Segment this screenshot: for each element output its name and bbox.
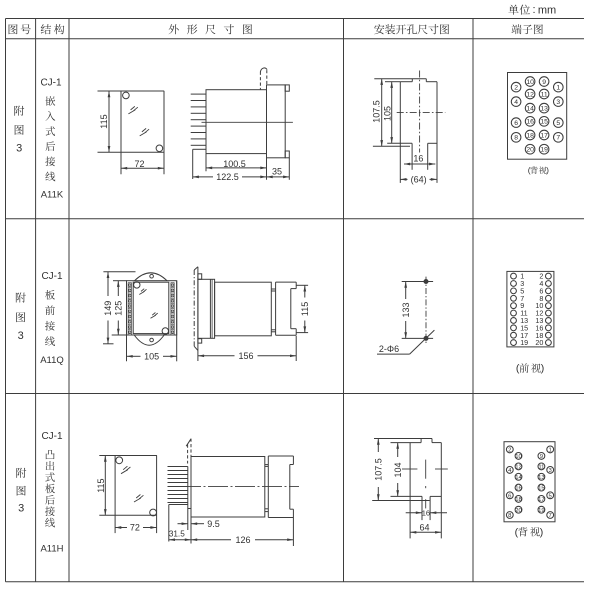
svg-text:115: 115: [300, 302, 310, 316]
svg-text:107.5: 107.5: [373, 458, 383, 481]
svg-text:3: 3: [556, 99, 560, 106]
svg-text:2-Φ6: 2-Φ6: [379, 344, 399, 354]
svg-text:13: 13: [538, 475, 545, 481]
svg-text:105: 105: [382, 106, 392, 121]
svg-text:9.5: 9.5: [207, 519, 220, 529]
svg-text:100.5: 100.5: [223, 159, 246, 169]
svg-text:20: 20: [515, 508, 522, 514]
svg-text:1: 1: [556, 85, 560, 92]
svg-text:115: 115: [96, 478, 106, 492]
svg-text:1: 1: [549, 447, 552, 453]
svg-text:14: 14: [515, 475, 522, 481]
svg-text:3: 3: [18, 330, 24, 342]
svg-text:122.5: 122.5: [216, 172, 239, 182]
svg-text:19: 19: [520, 338, 528, 347]
svg-text:8: 8: [514, 135, 518, 142]
svg-text:mm: mm: [538, 5, 556, 17]
svg-text:(: (: [516, 363, 520, 375]
svg-text:17: 17: [540, 132, 548, 139]
svg-text:35: 35: [272, 167, 282, 177]
svg-text:14: 14: [526, 106, 534, 113]
svg-text:20: 20: [535, 338, 543, 347]
svg-text:A11H: A11H: [40, 543, 63, 554]
svg-text:18: 18: [526, 132, 534, 139]
svg-text:CJ-1: CJ-1: [40, 77, 62, 88]
svg-text:CJ-1: CJ-1: [41, 271, 63, 282]
svg-text:(: (: [528, 165, 531, 175]
svg-text:107.5: 107.5: [372, 100, 382, 123]
svg-text:17: 17: [538, 497, 545, 503]
svg-text:72: 72: [134, 159, 144, 169]
svg-text:11: 11: [538, 464, 544, 470]
svg-text:A11K: A11K: [41, 189, 64, 200]
svg-text:A11Q: A11Q: [40, 355, 64, 366]
svg-text:12: 12: [526, 91, 534, 98]
svg-text::: :: [532, 4, 535, 16]
svg-text:115: 115: [99, 114, 109, 128]
svg-text:): ): [541, 363, 545, 375]
svg-text:15: 15: [540, 119, 548, 126]
svg-text:13: 13: [540, 106, 548, 113]
svg-text:3: 3: [16, 143, 22, 155]
svg-text:): ): [540, 526, 544, 538]
svg-text:2: 2: [514, 85, 518, 92]
svg-text:(: (: [515, 526, 519, 538]
svg-text:16: 16: [413, 154, 423, 164]
svg-text:5: 5: [556, 120, 560, 127]
svg-text:9: 9: [540, 454, 543, 460]
svg-text:72: 72: [130, 523, 140, 533]
svg-text:11: 11: [541, 91, 548, 98]
svg-text:9: 9: [542, 79, 546, 86]
svg-text:19: 19: [538, 508, 545, 514]
svg-text:10: 10: [526, 79, 534, 86]
svg-text:15: 15: [538, 486, 545, 492]
svg-text:7: 7: [556, 135, 560, 142]
svg-text:64: 64: [419, 522, 429, 532]
svg-text:105: 105: [144, 352, 159, 362]
svg-text:156: 156: [238, 351, 253, 361]
svg-text:2: 2: [508, 447, 511, 453]
svg-text:16: 16: [526, 119, 534, 126]
svg-text:CJ-1: CJ-1: [41, 431, 63, 442]
svg-text:125: 125: [113, 301, 123, 316]
svg-text:31.5: 31.5: [169, 529, 185, 538]
svg-text:10: 10: [515, 454, 522, 460]
svg-text:12: 12: [515, 464, 522, 470]
svg-text:20: 20: [526, 147, 534, 154]
svg-text:18: 18: [515, 497, 522, 503]
svg-text:16: 16: [422, 508, 430, 517]
svg-text:(64): (64): [411, 175, 427, 185]
svg-text:4: 4: [514, 99, 518, 106]
svg-text:149: 149: [103, 301, 113, 316]
svg-text:): ): [546, 165, 549, 175]
svg-text:126: 126: [235, 535, 250, 545]
svg-text:7: 7: [549, 513, 552, 519]
svg-text:133: 133: [401, 302, 411, 317]
svg-text:16: 16: [515, 486, 522, 492]
svg-text:3: 3: [18, 503, 24, 515]
svg-text:6: 6: [514, 120, 518, 127]
svg-text:104: 104: [393, 462, 403, 477]
svg-text:19: 19: [540, 147, 548, 154]
